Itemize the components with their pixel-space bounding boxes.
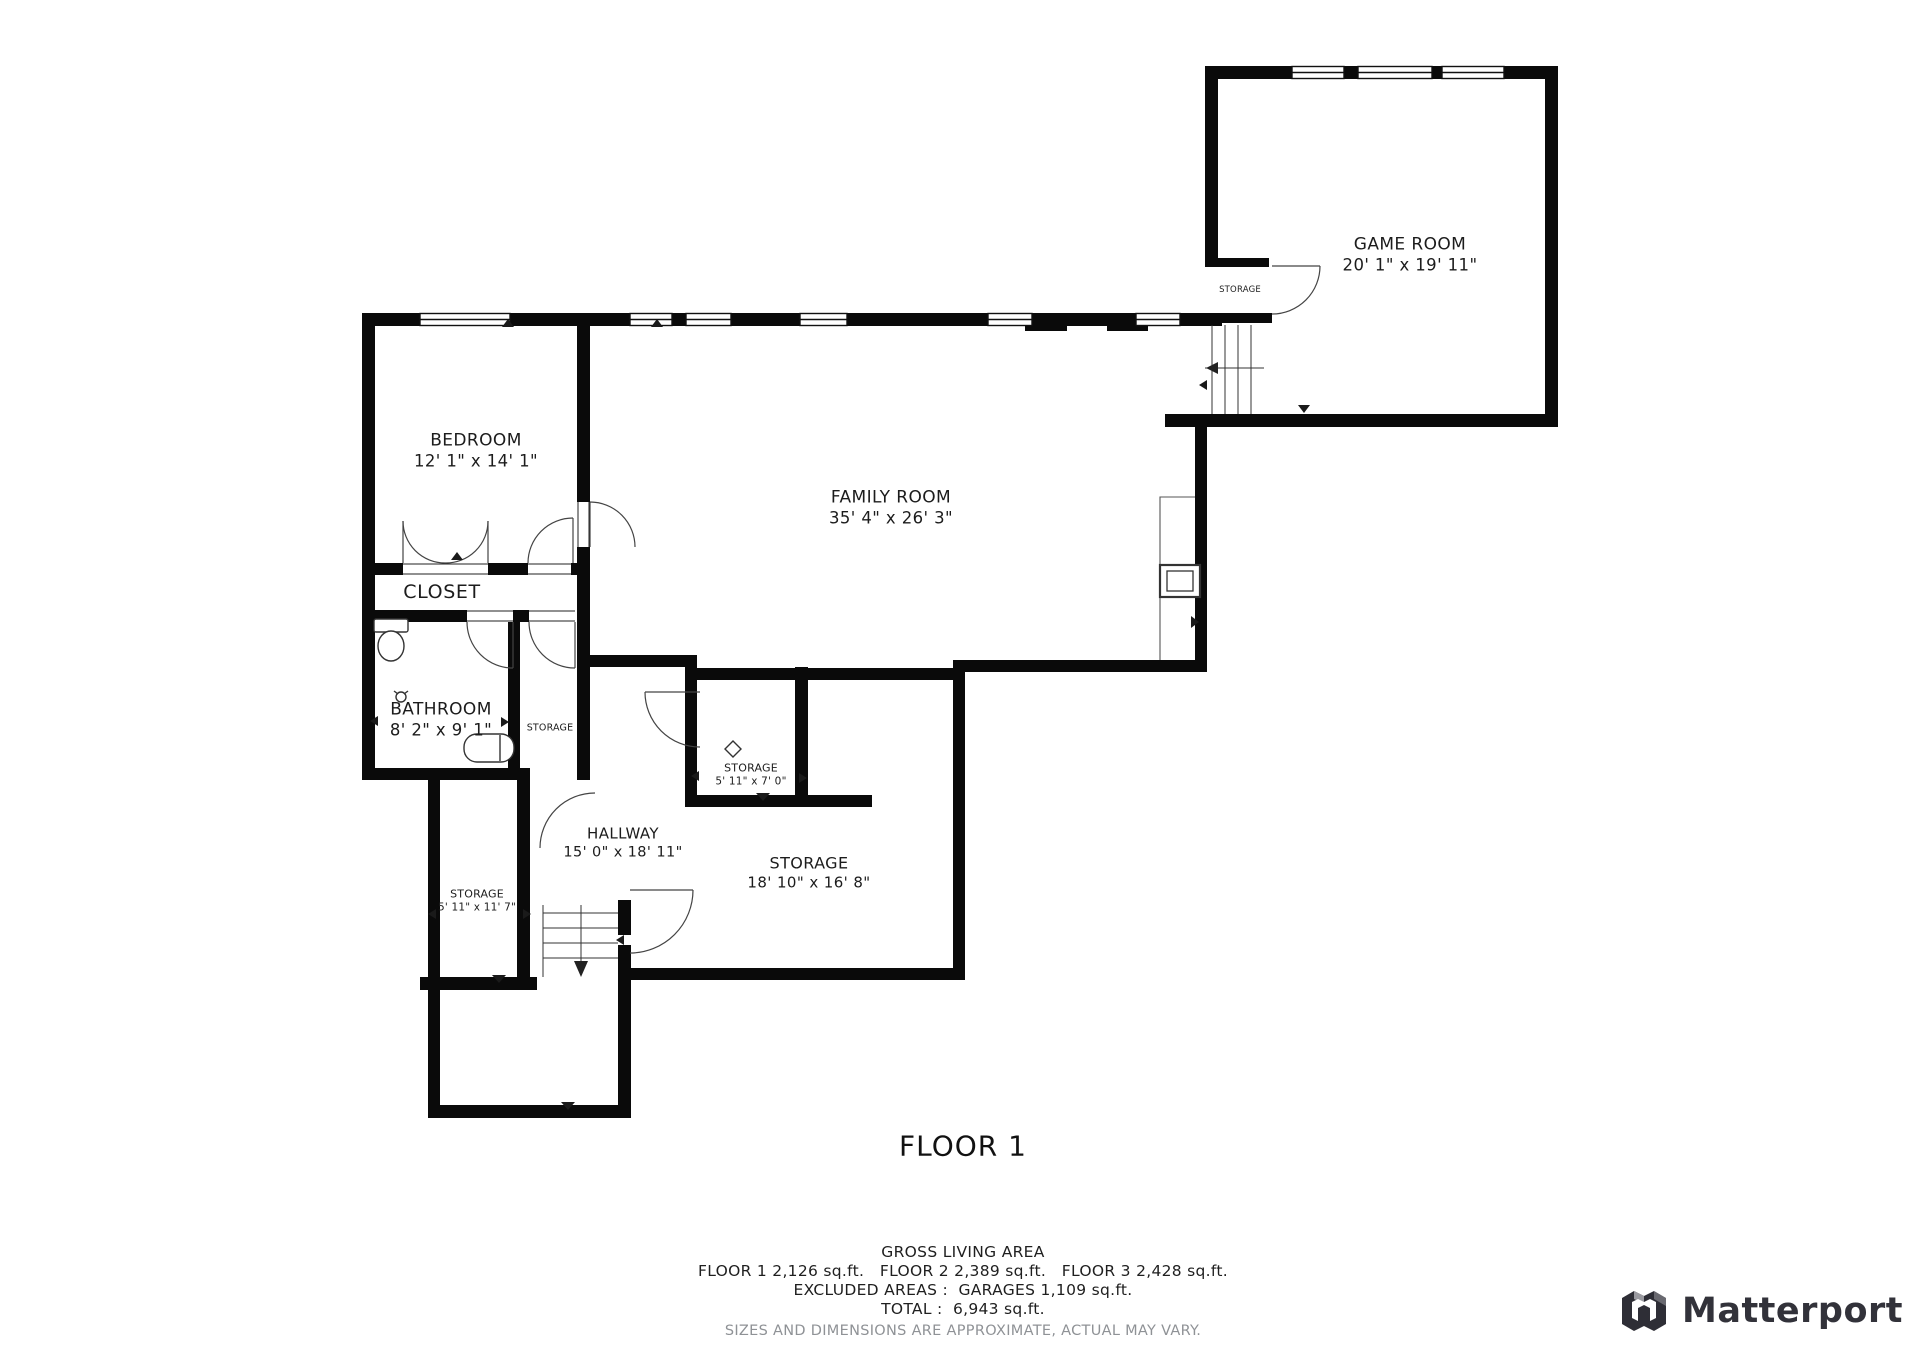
room-name: STORAGE <box>438 888 516 902</box>
matterport-logo: Matterport <box>1620 1288 1903 1334</box>
room-label-family-room: FAMILY ROOM 35' 4" x 26' 3" <box>829 488 953 529</box>
summary-excluded: EXCLUDED AREAS : GARAGES 1,109 sq.ft. <box>698 1281 1228 1300</box>
stairs-lower <box>543 905 618 977</box>
room-label-storage-gamebox: STORAGE <box>1219 285 1261 295</box>
toilet-bowl <box>378 631 404 661</box>
summary-floors: FLOOR 1 2,126 sq.ft. FLOOR 2 2,389 sq.ft… <box>698 1262 1228 1281</box>
room-dims: 12' 1" x 14' 1" <box>414 452 538 472</box>
stairs-upper <box>1205 325 1264 414</box>
matterport-logo-text: Matterport <box>1682 1289 1903 1333</box>
room-name: HALLWAY <box>563 825 682 844</box>
ceiling-hatch-diamond <box>725 741 741 757</box>
fireplace-inner <box>1167 571 1193 591</box>
room-name: FAMILY ROOM <box>829 488 953 509</box>
room-name: STORAGE <box>1219 285 1261 295</box>
floor-plan-page: { "floor_plan": { "title": "FLOOR 1", "r… <box>0 0 1920 1358</box>
room-name: STORAGE <box>527 723 574 734</box>
room-label-bathroom: BATHROOM 8' 2" x 9' 1" <box>390 700 492 741</box>
room-label-storage-left: STORAGE 5' 11" x 11' 7" <box>438 888 516 915</box>
walls <box>362 66 1558 1118</box>
area-summary: GROSS LIVING AREA FLOOR 1 2,126 sq.ft. F… <box>698 1243 1228 1341</box>
fixtures <box>374 497 1200 762</box>
room-dims: 18' 10" x 16' 8" <box>747 874 870 893</box>
room-dims: 35' 4" x 26' 3" <box>829 509 953 529</box>
door-swings <box>403 266 1320 953</box>
room-dims: 8' 2" x 9' 1" <box>390 721 492 741</box>
room-label-hallway: HALLWAY 15' 0" x 18' 11" <box>563 825 682 862</box>
summary-total: TOTAL : 6,943 sq.ft. <box>698 1300 1228 1319</box>
toilet-tank <box>374 619 408 632</box>
room-dims: 5' 11" x 7' 0" <box>715 776 786 789</box>
room-name: BATHROOM <box>390 700 492 721</box>
room-label-storage-hall: STORAGE 5' 11" x 7' 0" <box>715 762 786 789</box>
room-name: STORAGE <box>747 854 870 874</box>
summary-heading: GROSS LIVING AREA <box>698 1243 1228 1262</box>
room-name: GAME ROOM <box>1343 235 1478 256</box>
room-name: CLOSET <box>403 581 480 603</box>
windows <box>420 67 1504 326</box>
room-dims: 15' 0" x 18' 11" <box>563 844 682 862</box>
floor-title: FLOOR 1 <box>899 1130 1027 1163</box>
summary-disclaimer: SIZES AND DIMENSIONS ARE APPROXIMATE, AC… <box>698 1322 1228 1341</box>
room-label-storage-bath: STORAGE <box>527 723 574 734</box>
matterport-logo-icon <box>1620 1288 1668 1334</box>
room-name: BEDROOM <box>414 431 538 452</box>
room-label-closet: CLOSET <box>403 581 480 603</box>
room-label-game-room: GAME ROOM 20' 1" x 19' 11" <box>1343 235 1478 276</box>
room-dims: 20' 1" x 19' 11" <box>1343 256 1478 276</box>
room-label-bedroom: BEDROOM 12' 1" x 14' 1" <box>414 431 538 472</box>
room-dims: 5' 11" x 11' 7" <box>438 902 516 915</box>
room-name: STORAGE <box>715 762 786 776</box>
room-label-storage-main: STORAGE 18' 10" x 16' 8" <box>747 854 870 893</box>
